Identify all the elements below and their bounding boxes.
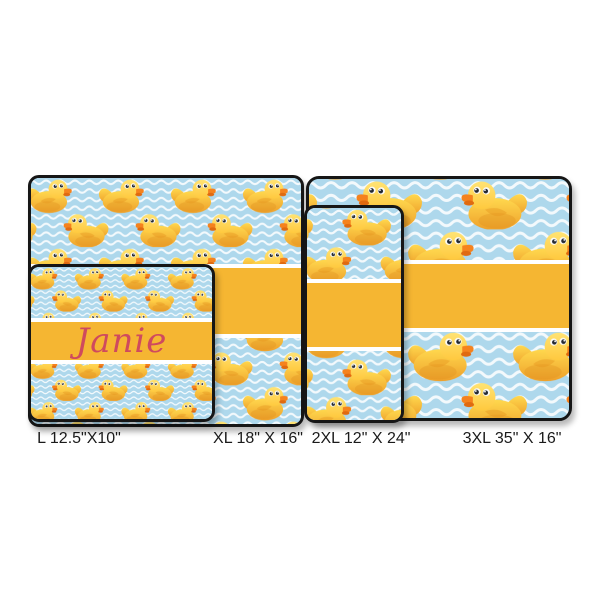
size-comparison-chart: Janie L 12.5"X10" XL 18" X 16" 2XL 12" X…	[0, 0, 600, 600]
name-band-l: Janie	[31, 318, 212, 364]
size-label-l: L 12.5"X10"	[37, 430, 121, 448]
name-band-2xl	[307, 279, 401, 351]
personalized-name: Janie	[76, 324, 168, 358]
size-label-2xl: 2XL 12" X 24"	[312, 430, 411, 448]
mat-preview-l: Janie	[28, 264, 215, 422]
size-label-3xl: 3XL 35" X 16"	[463, 430, 562, 448]
size-label-xl: XL 18" X 16"	[213, 430, 303, 448]
mat-preview-2xl	[304, 205, 404, 423]
